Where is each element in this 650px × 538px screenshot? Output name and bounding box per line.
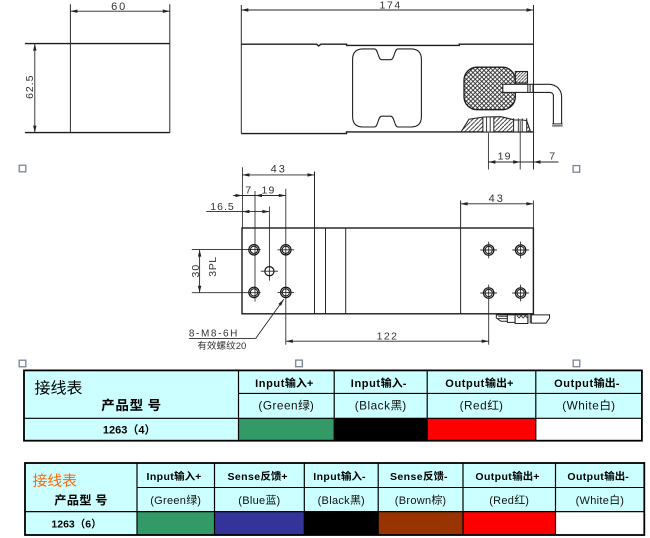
svg-text:): ) — [620, 495, 624, 507]
svg-text:Input: Input — [313, 471, 341, 483]
svg-text:+: + — [533, 471, 540, 483]
svg-text:): ) — [611, 399, 615, 413]
svg-text:Sense: Sense — [228, 471, 261, 483]
svg-text:4: 4 — [138, 425, 145, 437]
svg-text:-: - — [625, 471, 629, 483]
svg-text:-: - — [403, 378, 407, 390]
svg-text:60: 60 — [111, 1, 127, 13]
svg-text:7: 7 — [549, 150, 555, 162]
svg-text:20: 20 — [236, 341, 247, 352]
svg-text:19: 19 — [498, 150, 512, 162]
svg-text:(Green: (Green — [150, 495, 186, 507]
svg-text:): ) — [499, 399, 503, 413]
svg-text:(Red: (Red — [460, 399, 488, 413]
svg-text:19: 19 — [261, 185, 275, 197]
svg-text:): ) — [525, 495, 529, 507]
svg-text:): ) — [361, 495, 365, 507]
svg-text:43: 43 — [489, 193, 505, 205]
svg-text:Sense: Sense — [390, 471, 423, 483]
svg-text:): ) — [197, 495, 201, 507]
svg-text:+: + — [307, 378, 314, 390]
svg-text:6: 6 — [85, 519, 91, 531]
svg-text:): ) — [277, 495, 281, 507]
svg-text:(White: (White — [576, 495, 610, 507]
svg-text:Input: Input — [351, 378, 381, 390]
svg-text:Input: Input — [147, 471, 175, 483]
svg-text:174: 174 — [380, 0, 402, 11]
svg-text:-: - — [616, 378, 620, 390]
svg-text:Output: Output — [445, 378, 485, 390]
svg-text:43: 43 — [271, 164, 287, 176]
svg-text:8-M8-6H: 8-M8-6H — [189, 328, 239, 339]
svg-text:(Blue: (Blue — [238, 495, 265, 507]
svg-text:(Red: (Red — [489, 495, 514, 507]
svg-text:(Black: (Black — [355, 399, 391, 413]
svg-text:7: 7 — [245, 185, 251, 197]
svg-text:Output: Output — [475, 471, 512, 483]
svg-text:30: 30 — [190, 264, 202, 278]
svg-text:): ) — [402, 399, 406, 413]
svg-text:1263: 1263 — [51, 519, 75, 531]
svg-text:16.5: 16.5 — [210, 201, 234, 213]
svg-text:+: + — [507, 378, 514, 390]
svg-text:Output: Output — [567, 471, 604, 483]
svg-text:1263: 1263 — [103, 425, 127, 437]
svg-text:(White: (White — [562, 399, 599, 413]
svg-text:(Brown: (Brown — [395, 495, 432, 507]
svg-text:Input: Input — [255, 378, 285, 390]
svg-text:122: 122 — [377, 330, 399, 342]
svg-text:3PL: 3PL — [207, 256, 219, 276]
svg-text:-: - — [444, 471, 448, 483]
svg-text:): ) — [310, 399, 314, 413]
svg-text:62.5: 62.5 — [24, 74, 36, 98]
svg-text:+: + — [195, 471, 202, 483]
svg-text:(Black: (Black — [318, 495, 351, 507]
svg-text:): ) — [442, 495, 446, 507]
svg-text:Output: Output — [554, 378, 594, 390]
svg-text:(Green: (Green — [258, 399, 298, 413]
svg-text:+: + — [281, 471, 288, 483]
svg-text:-: - — [362, 471, 366, 483]
